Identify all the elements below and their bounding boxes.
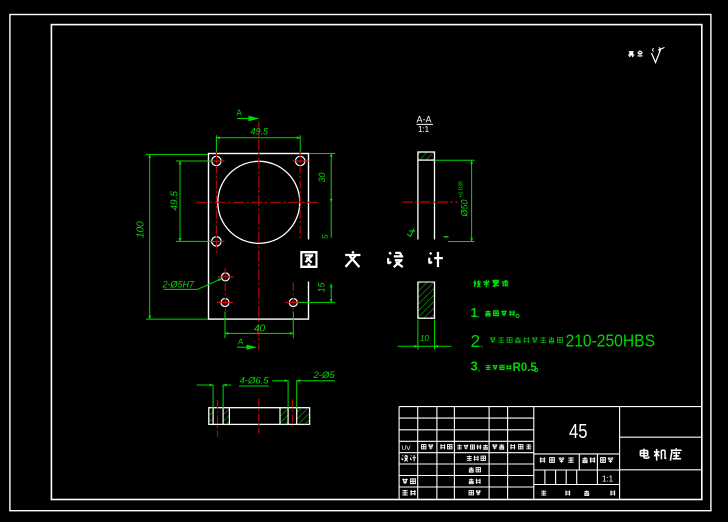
- svg-text:UV: UV: [402, 445, 412, 452]
- svg-text:2: 2: [471, 331, 481, 351]
- svg-text:15: 15: [317, 281, 327, 292]
- svg-text:、: 、: [477, 313, 484, 320]
- svg-text:210-250HBS: 210-250HBS: [566, 331, 656, 351]
- svg-text:2-Ø5H7: 2-Ø5H7: [162, 280, 196, 290]
- svg-text:4-Ø6.5: 4-Ø6.5: [240, 376, 270, 387]
- svg-text:5: 5: [321, 234, 330, 239]
- svg-text:100: 100: [136, 221, 147, 238]
- svg-text:30: 30: [317, 172, 327, 182]
- svg-text:Ø50: Ø50: [460, 199, 470, 217]
- svg-text:2-Ø5: 2-Ø5: [313, 370, 336, 381]
- svg-text:10: 10: [420, 334, 429, 343]
- svg-text:49.5: 49.5: [170, 191, 181, 211]
- svg-text:40: 40: [254, 324, 266, 335]
- svg-text:A: A: [238, 338, 244, 347]
- svg-text:A-A: A-A: [417, 115, 432, 125]
- svg-text:、: 、: [480, 340, 488, 349]
- svg-text:49.5: 49.5: [251, 127, 270, 137]
- svg-text:R0.5: R0.5: [513, 362, 538, 374]
- svg-text:A: A: [237, 109, 243, 118]
- svg-text:+0.039: +0.039: [459, 181, 465, 198]
- svg-text:45: 45: [569, 420, 588, 443]
- svg-text:、: 、: [478, 366, 485, 373]
- svg-text:1:1: 1:1: [602, 475, 614, 484]
- svg-text:1:1: 1:1: [418, 125, 430, 134]
